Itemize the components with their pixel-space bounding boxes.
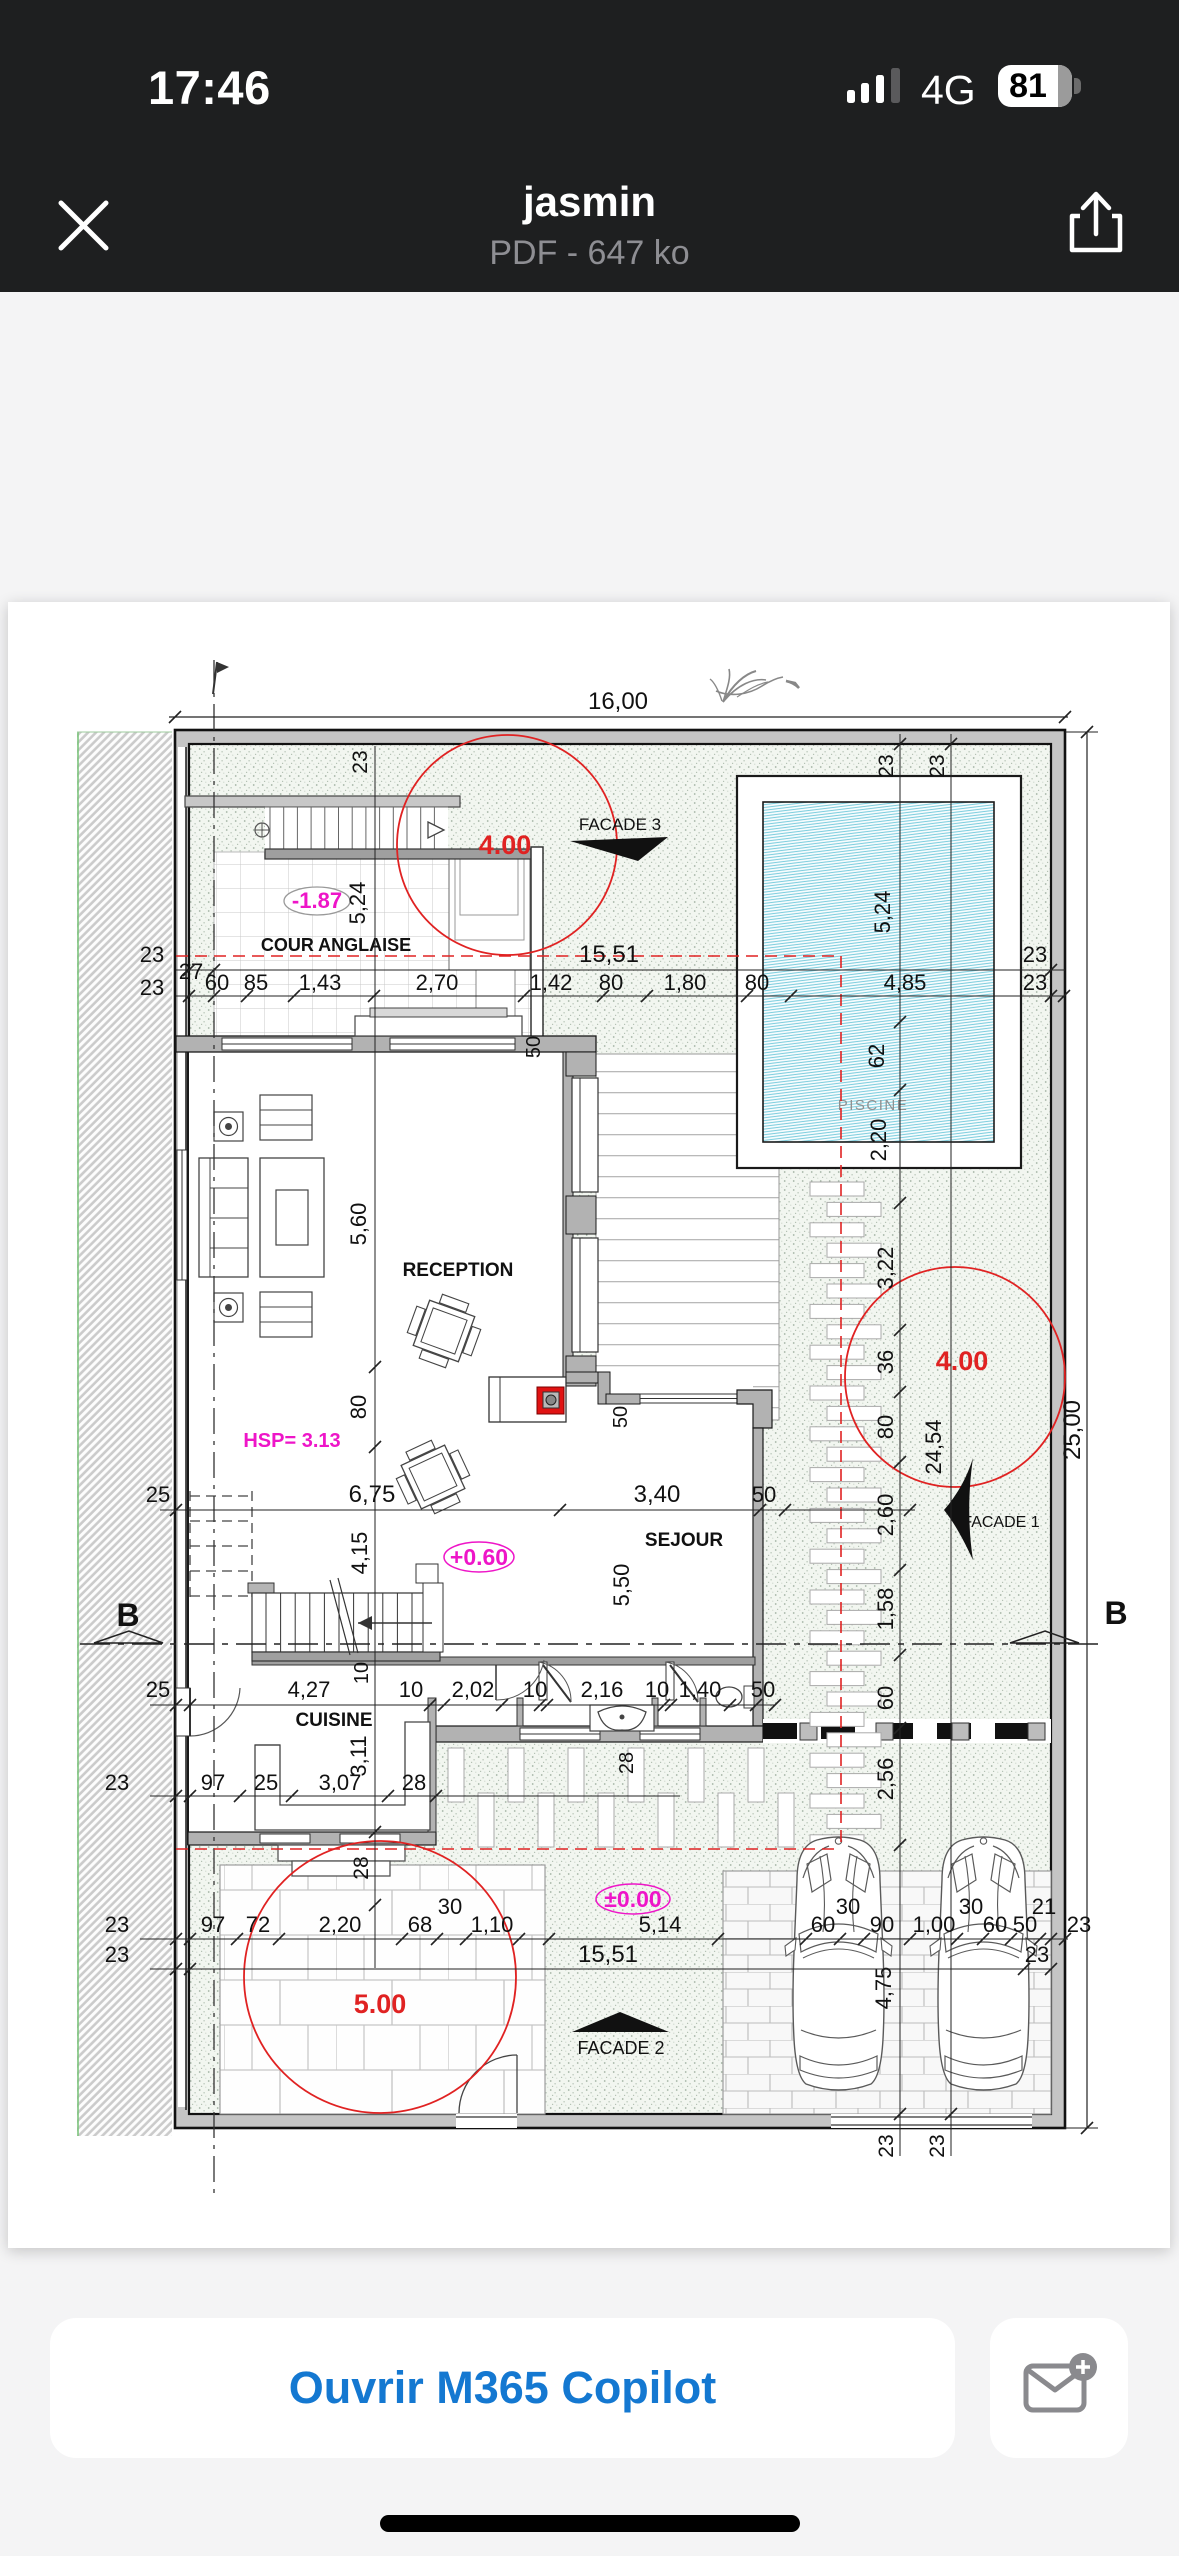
svg-text:1,80: 1,80 (664, 970, 707, 995)
svg-text:60: 60 (811, 1912, 835, 1937)
svg-text:5,14: 5,14 (639, 1912, 682, 1937)
svg-text:23: 23 (926, 754, 949, 777)
svg-text:23: 23 (1023, 942, 1047, 967)
svg-text:23: 23 (105, 1942, 129, 1967)
svg-text:4,85: 4,85 (884, 970, 927, 995)
svg-text:50: 50 (752, 1482, 776, 1507)
svg-text:97: 97 (201, 1912, 225, 1937)
svg-text:50: 50 (751, 1677, 775, 1702)
svg-text:60: 60 (983, 1912, 1007, 1937)
svg-text:CUISINE: CUISINE (295, 1710, 372, 1731)
svg-text:62: 62 (864, 1044, 889, 1068)
svg-text:3,40: 3,40 (634, 1481, 681, 1508)
svg-text:80: 80 (873, 1415, 898, 1439)
svg-text:10: 10 (351, 1662, 373, 1684)
svg-text:2,70: 2,70 (416, 970, 459, 995)
svg-text:36: 36 (873, 1350, 898, 1374)
svg-text:10: 10 (645, 1677, 669, 1702)
svg-text:15,51: 15,51 (578, 1941, 638, 1968)
svg-text:B: B (116, 1597, 139, 1633)
svg-text:28: 28 (402, 1770, 426, 1795)
svg-text:5.00: 5.00 (354, 1989, 407, 2019)
svg-text:1,43: 1,43 (299, 970, 342, 995)
svg-text:B: B (1104, 1595, 1127, 1631)
svg-text:80: 80 (745, 970, 769, 995)
svg-text:1,42: 1,42 (530, 970, 573, 995)
svg-text:FACADE 2: FACADE 2 (577, 2038, 664, 2058)
svg-text:23: 23 (349, 750, 372, 773)
svg-text:27: 27 (179, 959, 203, 984)
svg-text:23: 23 (1025, 1942, 1049, 1967)
svg-text:25: 25 (254, 1770, 278, 1795)
svg-text:30: 30 (438, 1894, 462, 1919)
svg-text:25,00: 25,00 (1059, 1400, 1086, 1460)
svg-text:4,75: 4,75 (871, 1967, 896, 2010)
svg-text:15,51: 15,51 (579, 941, 639, 968)
svg-text:4,15: 4,15 (347, 1532, 372, 1575)
svg-text:5,60: 5,60 (346, 1203, 371, 1246)
svg-text:72: 72 (246, 1912, 270, 1937)
svg-text:2,56: 2,56 (873, 1758, 898, 1801)
svg-text:80: 80 (346, 1395, 371, 1419)
svg-text:23: 23 (1023, 970, 1047, 995)
svg-text:60: 60 (205, 970, 229, 995)
svg-text:23: 23 (105, 1912, 129, 1937)
svg-text:1,40: 1,40 (679, 1677, 722, 1702)
svg-text:2,20: 2,20 (319, 1912, 362, 1937)
svg-text:1,10: 1,10 (471, 1912, 514, 1937)
svg-text:SEJOUR: SEJOUR (645, 1530, 723, 1551)
svg-text:28: 28 (350, 1856, 373, 1879)
svg-text:50: 50 (523, 1036, 545, 1058)
svg-text:23: 23 (926, 2134, 949, 2157)
svg-text:1,58: 1,58 (873, 1588, 898, 1631)
svg-text:HSP= 3.13: HSP= 3.13 (243, 1430, 340, 1452)
svg-text:-1.87: -1.87 (292, 888, 342, 913)
svg-text:PISCINE: PISCINE (838, 1097, 909, 1114)
svg-text:2,60: 2,60 (873, 1494, 898, 1537)
svg-text:60: 60 (873, 1686, 898, 1710)
svg-text:6,75: 6,75 (349, 1481, 396, 1508)
svg-text:1,00: 1,00 (913, 1912, 956, 1937)
svg-text:10: 10 (399, 1677, 423, 1702)
svg-text:10: 10 (523, 1677, 547, 1702)
svg-text:68: 68 (408, 1912, 432, 1937)
svg-text:23: 23 (140, 975, 164, 1000)
svg-text:+0.60: +0.60 (450, 1544, 508, 1570)
svg-text:5,24: 5,24 (345, 882, 370, 925)
svg-text:23: 23 (140, 942, 164, 967)
svg-text:5,50: 5,50 (609, 1564, 634, 1607)
svg-text:25: 25 (146, 1677, 170, 1702)
svg-text:RECEPTION: RECEPTION (403, 1260, 514, 1281)
svg-text:30: 30 (959, 1894, 983, 1919)
svg-text:16,00: 16,00 (588, 688, 648, 715)
svg-text:23: 23 (105, 1770, 129, 1795)
svg-text:28: 28 (616, 1752, 638, 1774)
svg-text:50: 50 (610, 1406, 632, 1428)
svg-text:30: 30 (836, 1894, 860, 1919)
svg-text:FACADE 3: FACADE 3 (579, 815, 661, 834)
svg-text:COUR ANGLAISE: COUR ANGLAISE (261, 935, 411, 955)
svg-text:23: 23 (875, 754, 898, 777)
svg-text:21: 21 (1032, 1894, 1056, 1919)
svg-text:90: 90 (870, 1912, 894, 1937)
svg-text:23: 23 (875, 2134, 898, 2157)
svg-text:5,24: 5,24 (870, 891, 895, 934)
svg-text:85: 85 (244, 970, 268, 995)
svg-text:3,07: 3,07 (319, 1770, 362, 1795)
svg-text:4,27: 4,27 (288, 1677, 331, 1702)
svg-text:80: 80 (599, 970, 623, 995)
svg-text:±0.00: ±0.00 (604, 1886, 661, 1912)
svg-text:2,16: 2,16 (581, 1677, 624, 1702)
svg-text:24,54: 24,54 (921, 1419, 946, 1474)
svg-text:97: 97 (201, 1770, 225, 1795)
svg-text:4.00: 4.00 (479, 830, 532, 860)
svg-text:FACADE 1: FACADE 1 (962, 1514, 1039, 1531)
svg-text:25: 25 (146, 1482, 170, 1507)
svg-text:3,22: 3,22 (873, 1247, 898, 1290)
svg-text:4.00: 4.00 (936, 1346, 989, 1376)
svg-text:2,20: 2,20 (866, 1119, 891, 1162)
svg-text:2,02: 2,02 (452, 1677, 495, 1702)
